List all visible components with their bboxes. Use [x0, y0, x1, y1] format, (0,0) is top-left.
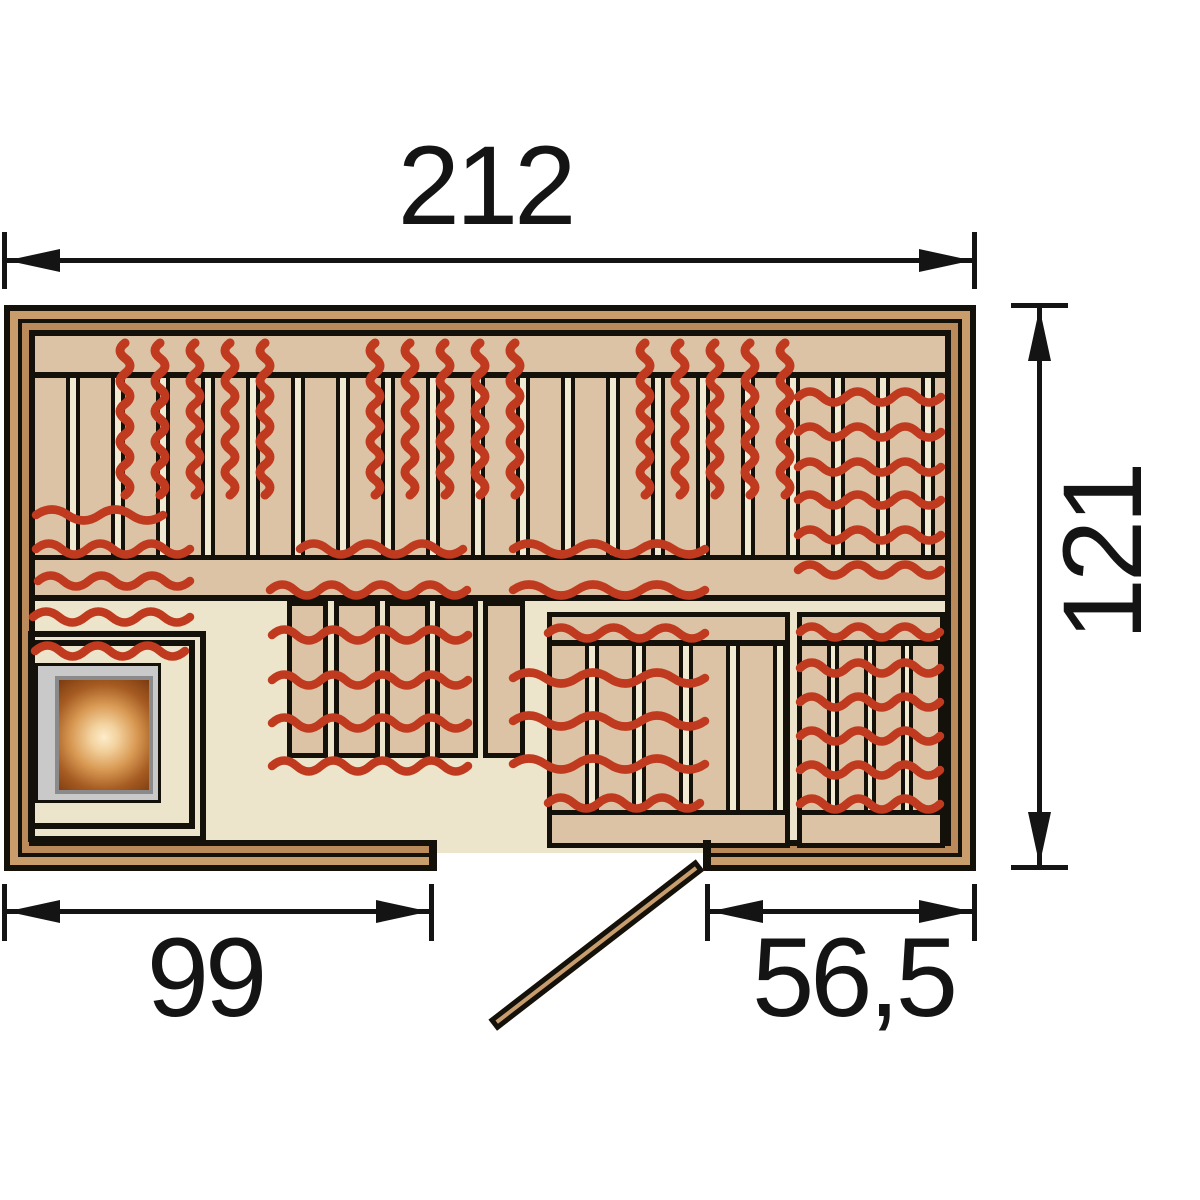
sauna-floor-plan: 212 121 99 56,5 [0, 0, 1200, 1200]
arrowhead-right-icon [919, 249, 972, 272]
extension-tick [1011, 865, 1068, 870]
dimension-door-left-label: 99 [55, 922, 355, 1034]
upper-bench-back-board [35, 336, 945, 372]
front-bench-left-bottom-board [552, 815, 785, 843]
dimension-line-99 [7, 909, 429, 914]
extension-tick [2, 232, 7, 289]
extension-tick [429, 884, 434, 941]
arrowhead-left-icon [7, 249, 60, 272]
front-bench-right-slats [802, 646, 940, 810]
dimension-depth-label: 121 [1047, 403, 1159, 703]
extension-tick [1011, 303, 1068, 308]
arrowhead-down-icon [1028, 812, 1051, 865]
extension-tick [972, 232, 977, 289]
lower-bench-slat [334, 601, 380, 758]
front-bench-left-slats [552, 646, 785, 810]
dimension-door-right-label: 56,5 [703, 922, 1003, 1034]
extension-tick [2, 884, 7, 941]
door-jamb-left [429, 840, 437, 871]
sauna-heater-stones [55, 676, 153, 794]
lower-bench-slat [483, 601, 525, 758]
lower-bench-slat [435, 601, 478, 758]
dimension-line-56-5 [710, 909, 972, 914]
dimension-width-label: 212 [335, 130, 635, 242]
lower-bench-slat [287, 601, 328, 758]
front-bench-right-bottom-board [802, 815, 940, 843]
lower-bench-slat [385, 601, 430, 758]
upper-bench-slats [35, 378, 945, 555]
door-jamb-right [703, 840, 711, 871]
dimension-line-212 [7, 258, 972, 263]
front-bench-right-top-board [802, 617, 940, 640]
front-bench-left-top-board [552, 617, 785, 640]
arrowhead-up-icon [1028, 308, 1051, 361]
upper-bench-front-board [35, 560, 945, 595]
arrowhead-right-icon [376, 900, 429, 923]
arrowhead-left-icon [7, 900, 60, 923]
